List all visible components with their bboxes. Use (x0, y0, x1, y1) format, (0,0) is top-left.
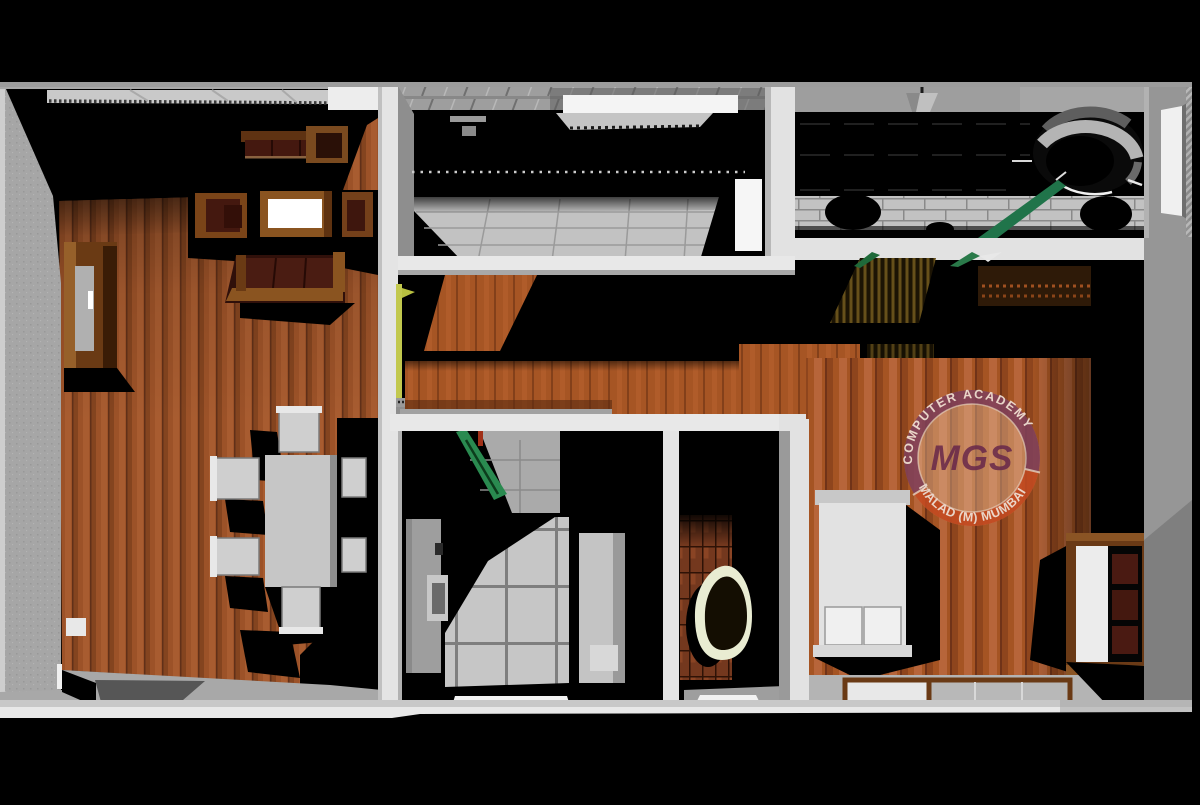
svg-text:MGS: MGS (931, 439, 1014, 478)
